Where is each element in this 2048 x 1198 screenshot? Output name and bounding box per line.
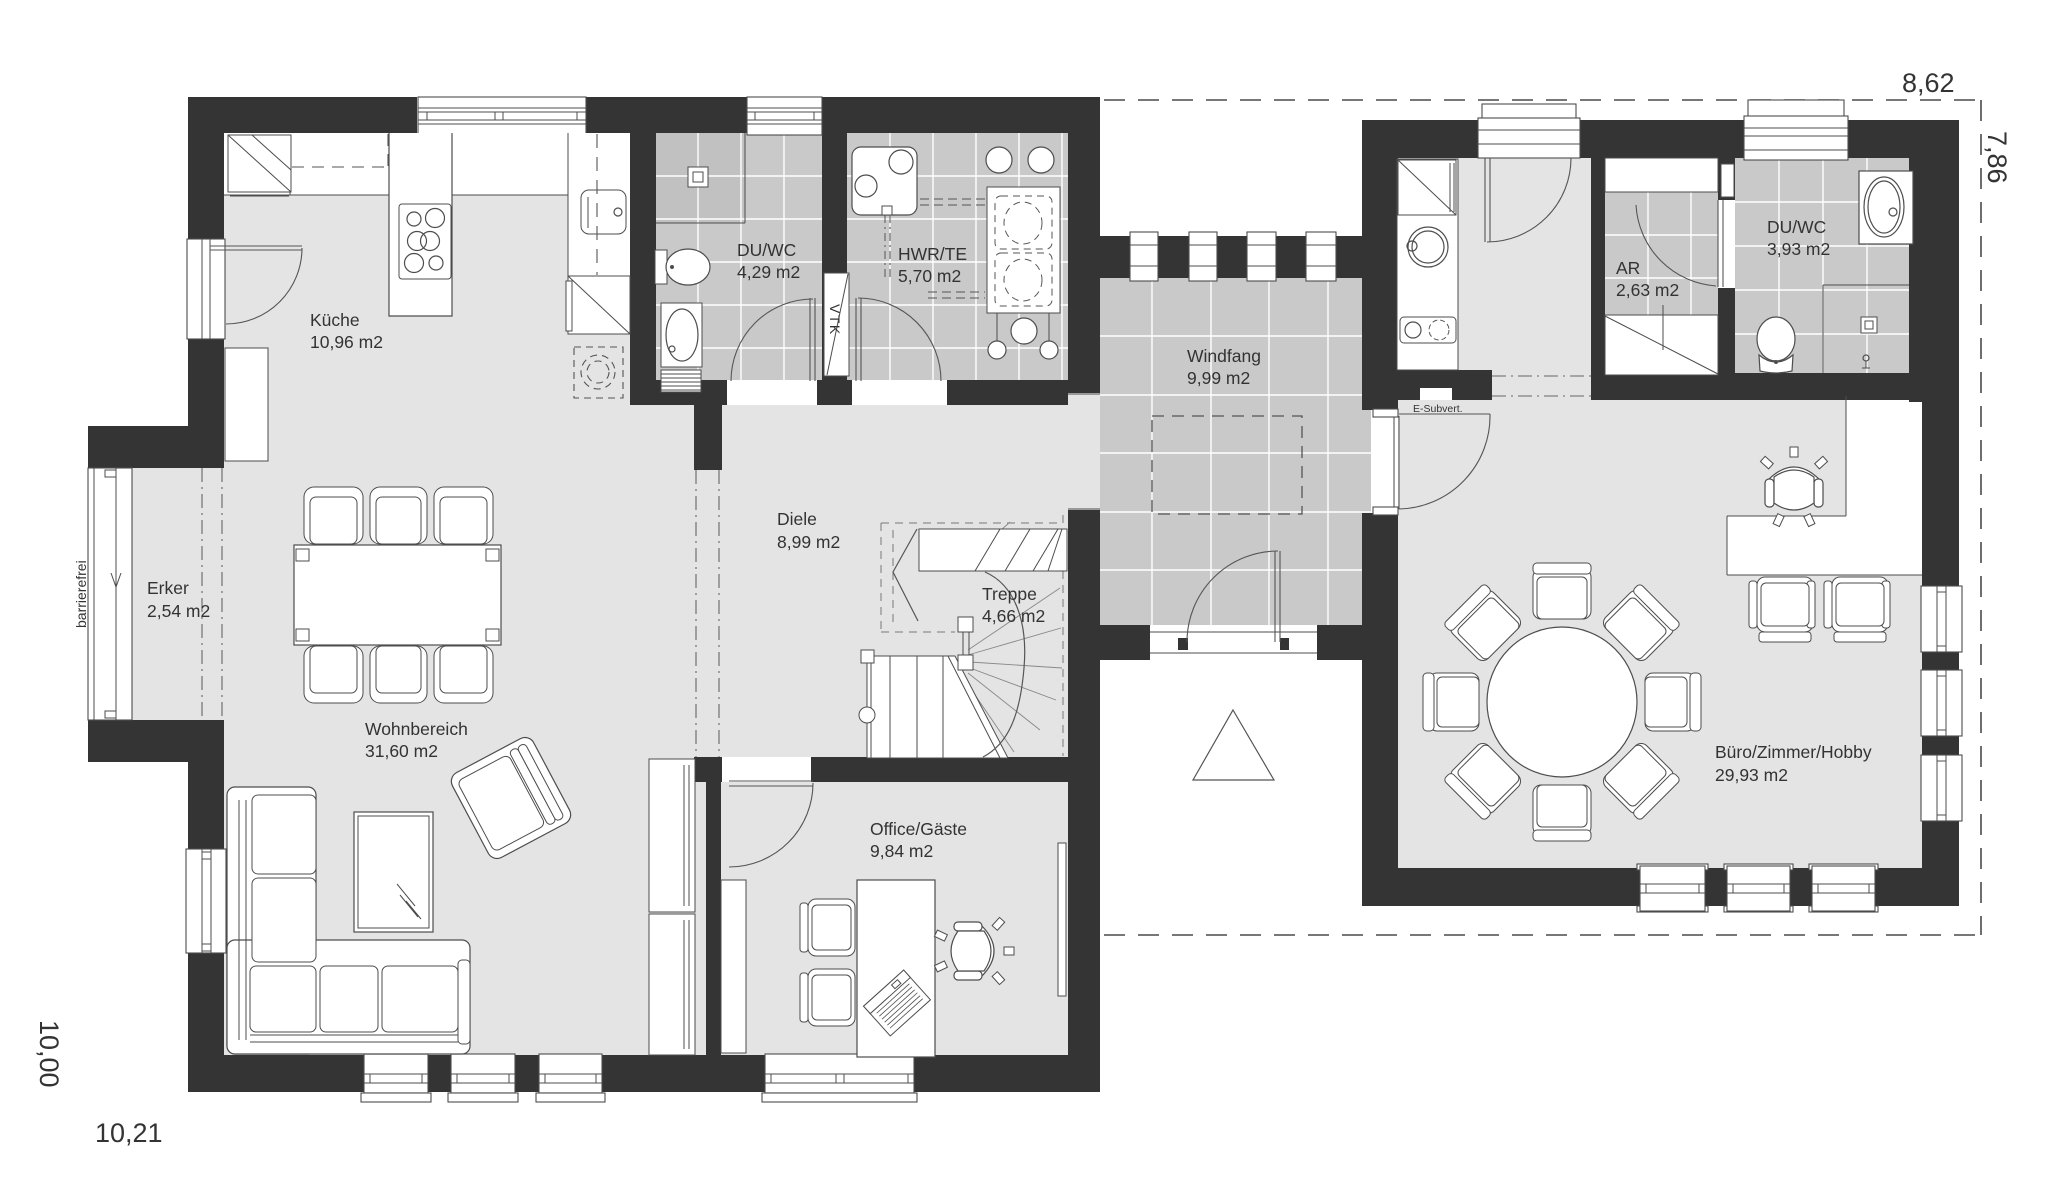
svg-text:10,96 m2: 10,96 m2 bbox=[310, 332, 383, 352]
svg-text:29,93 m2: 29,93 m2 bbox=[1715, 765, 1788, 785]
svg-text:3,93 m2: 3,93 m2 bbox=[1767, 239, 1830, 259]
svg-text:Küche: Küche bbox=[310, 310, 360, 330]
svg-text:Diele: Diele bbox=[777, 509, 817, 529]
svg-text:Office/Gäste: Office/Gäste bbox=[870, 819, 967, 839]
svg-text:VTK: VTK bbox=[827, 304, 843, 336]
svg-text:9,99 m2: 9,99 m2 bbox=[1187, 368, 1250, 388]
svg-text:10,21: 10,21 bbox=[95, 1118, 163, 1148]
svg-text:DU/WC: DU/WC bbox=[1767, 217, 1826, 237]
svg-text:Treppe: Treppe bbox=[982, 584, 1037, 604]
svg-text:Büro/Zimmer/Hobby: Büro/Zimmer/Hobby bbox=[1715, 742, 1872, 762]
svg-text:8,99 m2: 8,99 m2 bbox=[777, 532, 840, 552]
svg-text:4,29 m2: 4,29 m2 bbox=[737, 262, 800, 282]
svg-text:DU/WC: DU/WC bbox=[737, 240, 796, 260]
svg-text:5,70 m2: 5,70 m2 bbox=[898, 266, 961, 286]
svg-text:8,62: 8,62 bbox=[1902, 68, 1955, 98]
svg-text:AR: AR bbox=[1616, 258, 1640, 278]
svg-text:E-Subvert.: E-Subvert. bbox=[1413, 403, 1463, 415]
svg-text:2,54 m2: 2,54 m2 bbox=[147, 601, 210, 621]
svg-text:31,60 m2: 31,60 m2 bbox=[365, 741, 438, 761]
svg-text:4,66 m2: 4,66 m2 bbox=[982, 606, 1045, 626]
svg-text:2,63 m2: 2,63 m2 bbox=[1616, 280, 1679, 300]
svg-text:7,86: 7,86 bbox=[1982, 131, 2012, 184]
svg-text:9,84 m2: 9,84 m2 bbox=[870, 841, 933, 861]
svg-text:Wohnbereich: Wohnbereich bbox=[365, 719, 468, 739]
svg-text:Erker: Erker bbox=[147, 578, 189, 598]
svg-text:HWR/TE: HWR/TE bbox=[898, 244, 967, 264]
svg-text:barrierefrei: barrierefrei bbox=[73, 560, 89, 628]
svg-text:10,00: 10,00 bbox=[34, 1020, 64, 1088]
svg-text:Windfang: Windfang bbox=[1187, 346, 1261, 366]
